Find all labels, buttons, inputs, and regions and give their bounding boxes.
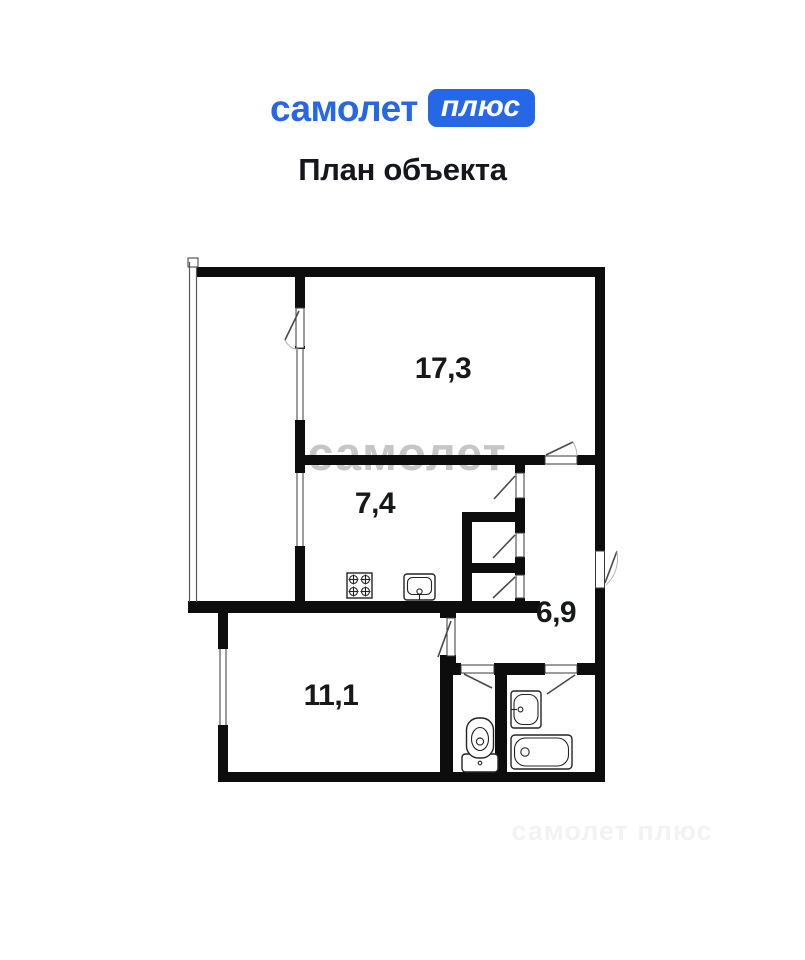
room-label-11-1: 11,1 bbox=[304, 679, 359, 712]
watermark-center: самолет bbox=[307, 427, 506, 480]
closet-door-lower bbox=[516, 575, 524, 598]
bathtub-icon bbox=[511, 735, 572, 769]
room-label-7-4: 7,4 bbox=[355, 487, 396, 520]
floor-plan: самолет bbox=[0, 0, 805, 960]
kitchen-door bbox=[516, 473, 524, 498]
room-label-17-3: 17,3 bbox=[415, 352, 471, 385]
closet-door-upper bbox=[516, 533, 524, 557]
windows bbox=[188, 258, 305, 728]
entrance-door bbox=[596, 551, 605, 588]
walls bbox=[188, 267, 605, 782]
bathroom-door bbox=[545, 665, 577, 673]
kitchen-sink-icon bbox=[404, 574, 435, 600]
wash-basin-icon bbox=[511, 691, 541, 728]
page: { "header": { "logo_text": "самолет", "l… bbox=[0, 0, 805, 960]
room-label-6-9: 6,9 bbox=[536, 596, 576, 629]
bedroom-door bbox=[447, 618, 455, 656]
watermark-bottom: самолет плюс bbox=[511, 816, 712, 846]
wc-door bbox=[461, 665, 494, 673]
living-room-door bbox=[545, 456, 577, 464]
toilet-icon bbox=[462, 718, 498, 772]
stove-icon bbox=[347, 573, 372, 598]
